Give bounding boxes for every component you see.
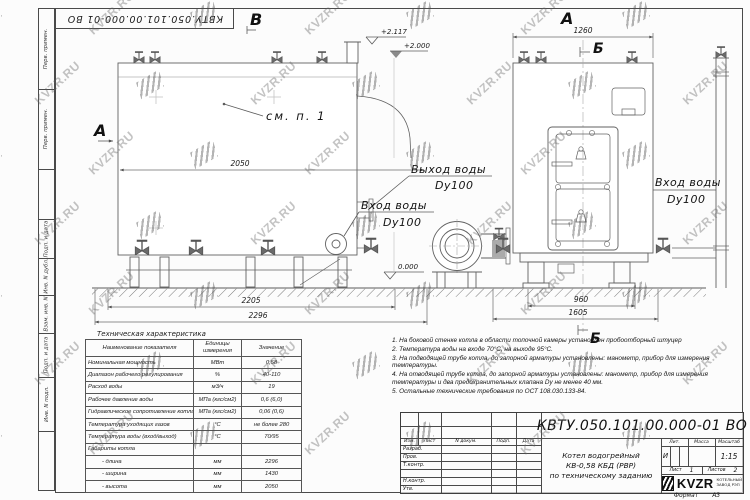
frame-left-strip: Перв. примен. Перв. примен. Подп. и дата… <box>38 8 55 491</box>
doc-code: КВТУ.050.101.00.000-01 ВО <box>542 414 742 437</box>
spec-name: Гидравлическое сопротивление котла <box>86 406 194 418</box>
format-value: А3 <box>712 492 720 499</box>
drawing-sheet: 2050 2205 2296 1260 960 1605 А В А Б Б с… <box>0 0 750 500</box>
kvzr-logo-text: KVZR <box>677 476 714 491</box>
boiler-side-view <box>118 42 411 287</box>
spec-name: Температура уходящих газов <box>86 418 194 430</box>
spec-name: - ширина <box>86 468 194 480</box>
spec-unit: мм <box>194 480 242 492</box>
scale-header: Масштаб <box>715 438 743 446</box>
dim-1605: 1605 <box>568 308 587 317</box>
dim-2296: 2296 <box>248 311 267 320</box>
spec-unit: % <box>194 369 242 381</box>
sheets-value: 2 <box>734 467 738 474</box>
frame-column-podp-data-2: Подп. и дата <box>39 333 54 378</box>
blower-fan <box>429 219 510 288</box>
water-outlet-label: Выход воды <box>411 163 486 176</box>
spec-row: - высотамм2050 <box>86 480 302 492</box>
frame-column-perv-primen-1: Перв. примен. <box>39 9 54 90</box>
dim-2050: 2050 <box>230 159 249 168</box>
company-line2: ЗАВОД РЭП <box>716 483 742 488</box>
spec-value: 2296 <box>242 456 302 468</box>
spec-header-value: Значение <box>242 340 302 357</box>
note-item: 2. Температура воды на входе 70°С, на вы… <box>392 346 744 354</box>
rev-header-list: Лист <box>418 438 441 445</box>
spec-table-block: Техническая характеристика Наименование … <box>85 330 302 493</box>
dim-960: 960 <box>574 295 589 304</box>
sheet-cell: Лист 1 <box>661 466 702 474</box>
title-block: КВТУ.050.101.00.000-01 ВО Изм. Лист N до… <box>400 412 744 494</box>
frame-column-label: Перв. примен. <box>44 109 50 149</box>
elevation-2000: +2.000 <box>404 42 430 50</box>
see-item-callout: см. п. 1 <box>266 109 326 123</box>
doc-title: Котел водогрейный КВ-0,58 КБД (РВР) по т… <box>542 440 660 492</box>
spec-name: Расход воды <box>86 381 194 393</box>
spec-table: Наименование показателя Единицы измерени… <box>85 339 302 493</box>
kvzr-logo-icon <box>662 476 674 491</box>
spec-name: Температура воды (вход/выход) <box>86 431 194 443</box>
spec-name: Номинальная мощность <box>86 357 194 369</box>
rev-header-podp: Подп. <box>491 438 516 445</box>
doc-code-stamp-text: КВТУ.050.101.00.000-01 ВО <box>67 13 223 24</box>
spec-unit: °С <box>194 431 242 443</box>
spec-header-unit: Единицы измерения <box>194 340 242 357</box>
spec-row: Температура воды (вход/выход)°С70/95 <box>86 431 302 443</box>
spec-header-name: Наименование показателя <box>86 340 194 357</box>
format-label: Формат А3 <box>652 492 742 499</box>
spec-value: 2050 <box>242 480 302 492</box>
role-razrab: Разраб. <box>401 445 443 453</box>
spec-unit: °С <box>194 418 242 430</box>
lit-header: Лит. <box>661 438 688 446</box>
spec-name: - длина <box>86 456 194 468</box>
water-inlet-right-label: Вход воды <box>655 176 721 189</box>
sheets-cell: Листов 2 <box>702 466 743 474</box>
doc-title-line1: Котел водогрейный <box>562 451 640 461</box>
spec-value: 1430 <box>242 468 302 480</box>
note-item: 4. На отводящей трубе котла, до запорной… <box>392 371 744 387</box>
rev-header-data: Дата <box>516 438 541 445</box>
spec-unit: мм <box>194 468 242 480</box>
spec-row: - длинамм2296 <box>86 456 302 468</box>
rev-header-izm: Изм. <box>401 438 418 445</box>
role-prov: Пров. <box>401 453 443 461</box>
spec-row: Номинальная мощностьМВт0,58 <box>86 357 302 369</box>
spec-name: Рабочее давление воды <box>86 394 194 406</box>
role-nkontr: Н.контр. <box>401 477 443 485</box>
spec-unit: МПа (кгс/см2) <box>194 406 242 418</box>
frame-column-vzam-inv: Взам. инв. N <box>39 295 54 334</box>
frame-column-label: Инв. N дубл. <box>44 258 50 293</box>
water-inlet-left-label: Вход воды <box>361 199 427 212</box>
spec-value: не более 280 <box>242 418 302 430</box>
doc-code-stamp: КВТУ.050.101.00.000-01 ВО <box>56 9 234 29</box>
spec-unit: МВт <box>194 357 242 369</box>
frame-column-label: Подп. и дата <box>44 337 50 374</box>
view-label-b-top: В <box>250 10 262 29</box>
spec-row: Температура уходящих газов°Сне более 280 <box>86 418 302 430</box>
note-item: 3. На подводящей трубе котла, до запорно… <box>392 355 744 371</box>
frame-column-label: Перв. примен. <box>44 29 50 69</box>
spec-value: 0,58 <box>242 357 302 369</box>
technical-notes: 1. На боковой стенке котла в области топ… <box>392 337 744 397</box>
spec-name: Габариты котла <box>86 443 194 455</box>
company-name: КОТЕЛЬНЫЙ ЗАВОД РЭП <box>716 478 742 487</box>
water-outlet-dn: Dy100 <box>435 179 473 192</box>
spec-unit: мм <box>194 456 242 468</box>
lit-value: И <box>661 446 670 466</box>
spec-value: 40-110 <box>242 369 302 381</box>
role-tkontr: Т.контр. <box>401 461 443 469</box>
dim-1260: 1260 <box>573 26 592 35</box>
sheets-label: Листов <box>708 468 726 473</box>
spec-unit <box>194 443 242 455</box>
spec-row: Рабочее давление водыМПа (кгс/см2)0,6 (6… <box>86 394 302 406</box>
frame-column-label: Подп. и дата <box>44 221 50 258</box>
view-label-a-right: А <box>559 9 573 28</box>
frame-column-label: Инв. N подл. <box>44 386 50 422</box>
spec-row: Гидравлическое сопротивление котлаМПа (к… <box>86 406 302 418</box>
elevation-2117: +2.117 <box>381 28 407 36</box>
sheet-value: 1 <box>690 467 694 474</box>
spec-unit: МПа (кгс/см2) <box>194 394 242 406</box>
frame-column-inv-podl: Инв. N подл. <box>39 377 54 432</box>
role-utv: Утв. <box>401 485 443 493</box>
spec-header-row: Наименование показателя Единицы измерени… <box>86 340 302 357</box>
water-inlet-left-dn: Dy100 <box>383 216 421 229</box>
spec-name: - высота <box>86 480 194 492</box>
frame-column-podp-data-1: Подп. и дата <box>39 219 54 259</box>
dim-2205: 2205 <box>241 296 260 305</box>
spec-name: Диапазон рабочего регулирования <box>86 369 194 381</box>
spec-row: - ширинамм1430 <box>86 468 302 480</box>
spec-value: 19 <box>242 381 302 393</box>
spec-unit: м3/ч <box>194 381 242 393</box>
doc-title-line2: КВ-0,58 КБД (РВР) <box>566 461 636 471</box>
water-inlet-right-dn: Dy100 <box>667 193 705 206</box>
ground-line <box>92 288 706 297</box>
doc-title-line3: по техническому заданию <box>550 471 653 481</box>
frame-column-inv-dubl: Инв. N дубл. <box>39 257 54 296</box>
note-item: 1. На боковой стенке котла в области топ… <box>392 337 744 345</box>
spec-row: Диапазон рабочего регулирования%40-110 <box>86 369 302 381</box>
sheet-label: Лист <box>670 468 682 473</box>
rev-header-ndocum: N докум. <box>441 438 491 445</box>
company-logo-row: KVZR КОТЕЛЬНЫЙ ЗАВОД РЭП <box>662 474 742 492</box>
spec-value <box>242 443 302 455</box>
spec-table-title: Техническая характеристика <box>97 330 302 338</box>
section-label-b-top: Б <box>593 41 604 57</box>
scale-value: 1:15 <box>715 446 743 466</box>
frame-column-perv-primen-2: Перв. примен. <box>39 89 54 170</box>
elevation-0: 0.000 <box>398 263 419 271</box>
view-label-a-left: А <box>92 121 106 140</box>
frame-column-label: Взам. инв. N <box>44 296 50 331</box>
mass-header: Масса <box>688 438 715 446</box>
spec-value: 70/95 <box>242 431 302 443</box>
note-item: 5. Остальные технические требования по О… <box>392 388 744 396</box>
spec-value: 0,06 (0,6) <box>242 406 302 418</box>
spec-row: Габариты котла <box>86 443 302 455</box>
spec-row: Расход водым3/ч19 <box>86 381 302 393</box>
format-word: Формат <box>674 492 698 499</box>
spec-value: 0,6 (6,0) <box>242 394 302 406</box>
